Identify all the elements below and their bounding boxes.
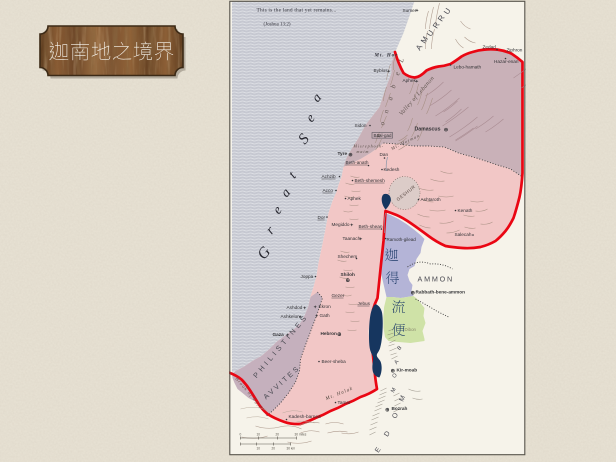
svg-text:Misrephoth-: Misrephoth-	[353, 144, 385, 149]
svg-text:Hebron: Hebron	[321, 331, 338, 336]
svg-text:20: 20	[276, 433, 280, 437]
svg-text:Gath: Gath	[320, 313, 331, 318]
svg-text:Taanach: Taanach	[343, 236, 361, 241]
svg-text:Beer-sheba: Beer-sheba	[322, 359, 347, 364]
svg-text:Ashdod: Ashdod	[287, 305, 303, 310]
svg-text:Dan: Dan	[380, 152, 389, 157]
svg-text:30 km: 30 km	[287, 447, 296, 451]
svg-text:Dibon: Dibon	[405, 327, 417, 332]
svg-text:Mt. Hor: Mt. Hor	[374, 54, 399, 59]
svg-text:Achzib: Achzib	[322, 174, 336, 179]
svg-text:Joppa: Joppa	[301, 274, 314, 279]
svg-text:maim: maim	[357, 149, 370, 154]
svg-text:Acco: Acco	[323, 188, 334, 193]
svg-text:10: 10	[257, 433, 261, 437]
svg-text:Ramoth-gilead: Ramoth-gilead	[387, 237, 417, 242]
svg-text:Tyre: Tyre	[338, 151, 348, 156]
svg-text:AMMON: AMMON	[418, 275, 455, 284]
svg-text:Beth-shemesh: Beth-shemesh	[355, 178, 386, 183]
svg-text:Gaza: Gaza	[273, 332, 285, 337]
svg-text:Ashtaroth: Ashtaroth	[421, 197, 441, 202]
svg-text:Bozrah: Bozrah	[392, 406, 408, 411]
svg-text:Ashkelon: Ashkelon	[281, 314, 301, 319]
svg-text:10: 10	[257, 447, 261, 451]
svg-text:Rabbath-bene-ammon: Rabbath-bene-ammon	[416, 290, 466, 295]
svg-text:Beth-shean: Beth-shean	[359, 224, 383, 229]
svg-text:Sidon: Sidon	[355, 123, 367, 128]
svg-text:Aphek: Aphek	[348, 196, 362, 201]
svg-text:Gezer: Gezer	[332, 293, 345, 298]
svg-text:Ekron: Ekron	[319, 304, 332, 309]
svg-text:Hazar-enan: Hazar-enan	[494, 59, 519, 64]
svg-text:Kadesh-barnea: Kadesh-barnea	[289, 414, 321, 419]
svg-text:Beth-anath: Beth-anath	[346, 160, 369, 165]
svg-text:Shiloh: Shiloh	[341, 272, 355, 277]
svg-text:Baal-gad: Baal-gad	[374, 133, 393, 138]
svg-text:20: 20	[272, 447, 276, 451]
svg-text:Dor: Dor	[318, 215, 326, 220]
svg-text:Ziphron: Ziphron	[507, 47, 523, 52]
svg-text:30 miles: 30 miles	[295, 433, 307, 437]
svg-text:This is the land that yet rema: This is the land that yet remains...	[257, 8, 337, 14]
svg-text:(Joshua 13:2): (Joshua 13:2)	[264, 23, 291, 28]
svg-text:Lebo-hamath: Lebo-hamath	[454, 65, 482, 70]
svg-text:Kir-moab: Kir-moab	[397, 368, 418, 373]
svg-text:Jebus: Jebus	[358, 301, 371, 306]
svg-text:Tamar: Tamar	[338, 400, 351, 405]
svg-text:Kedesh: Kedesh	[384, 167, 400, 172]
svg-text:Sumer: Sumer	[403, 8, 417, 13]
svg-text:Shechem: Shechem	[338, 254, 358, 259]
svg-text:Aphek: Aphek	[403, 78, 417, 83]
svg-text:Damascus: Damascus	[415, 126, 441, 132]
svg-text:Zedad: Zedad	[483, 45, 497, 50]
svg-text:Kenath: Kenath	[458, 208, 473, 213]
svg-text:Megiddo: Megiddo	[332, 222, 350, 227]
svg-text:0: 0	[240, 433, 242, 437]
svg-text:Byblos: Byblos	[374, 68, 389, 73]
svg-text:Salecah: Salecah	[455, 232, 472, 237]
